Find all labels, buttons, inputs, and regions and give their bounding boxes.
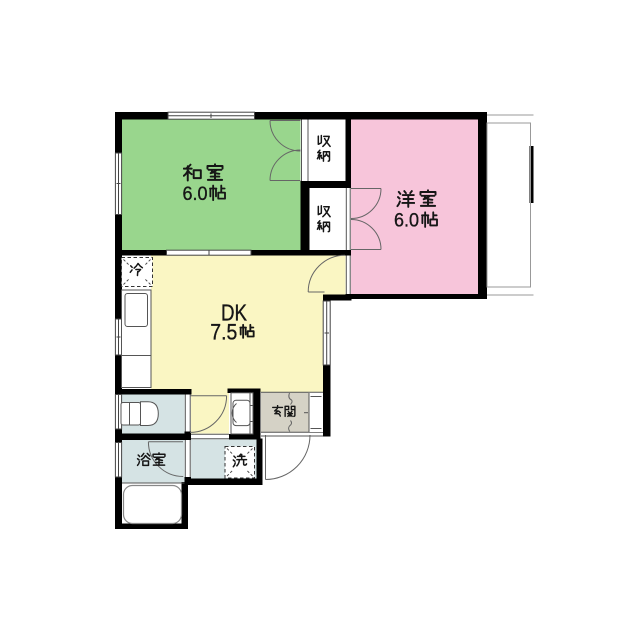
svg-text:7.5: 7.5	[210, 320, 237, 345]
svg-text:6.0: 6.0	[394, 210, 419, 232]
svg-text:6.0: 6.0	[183, 183, 208, 205]
